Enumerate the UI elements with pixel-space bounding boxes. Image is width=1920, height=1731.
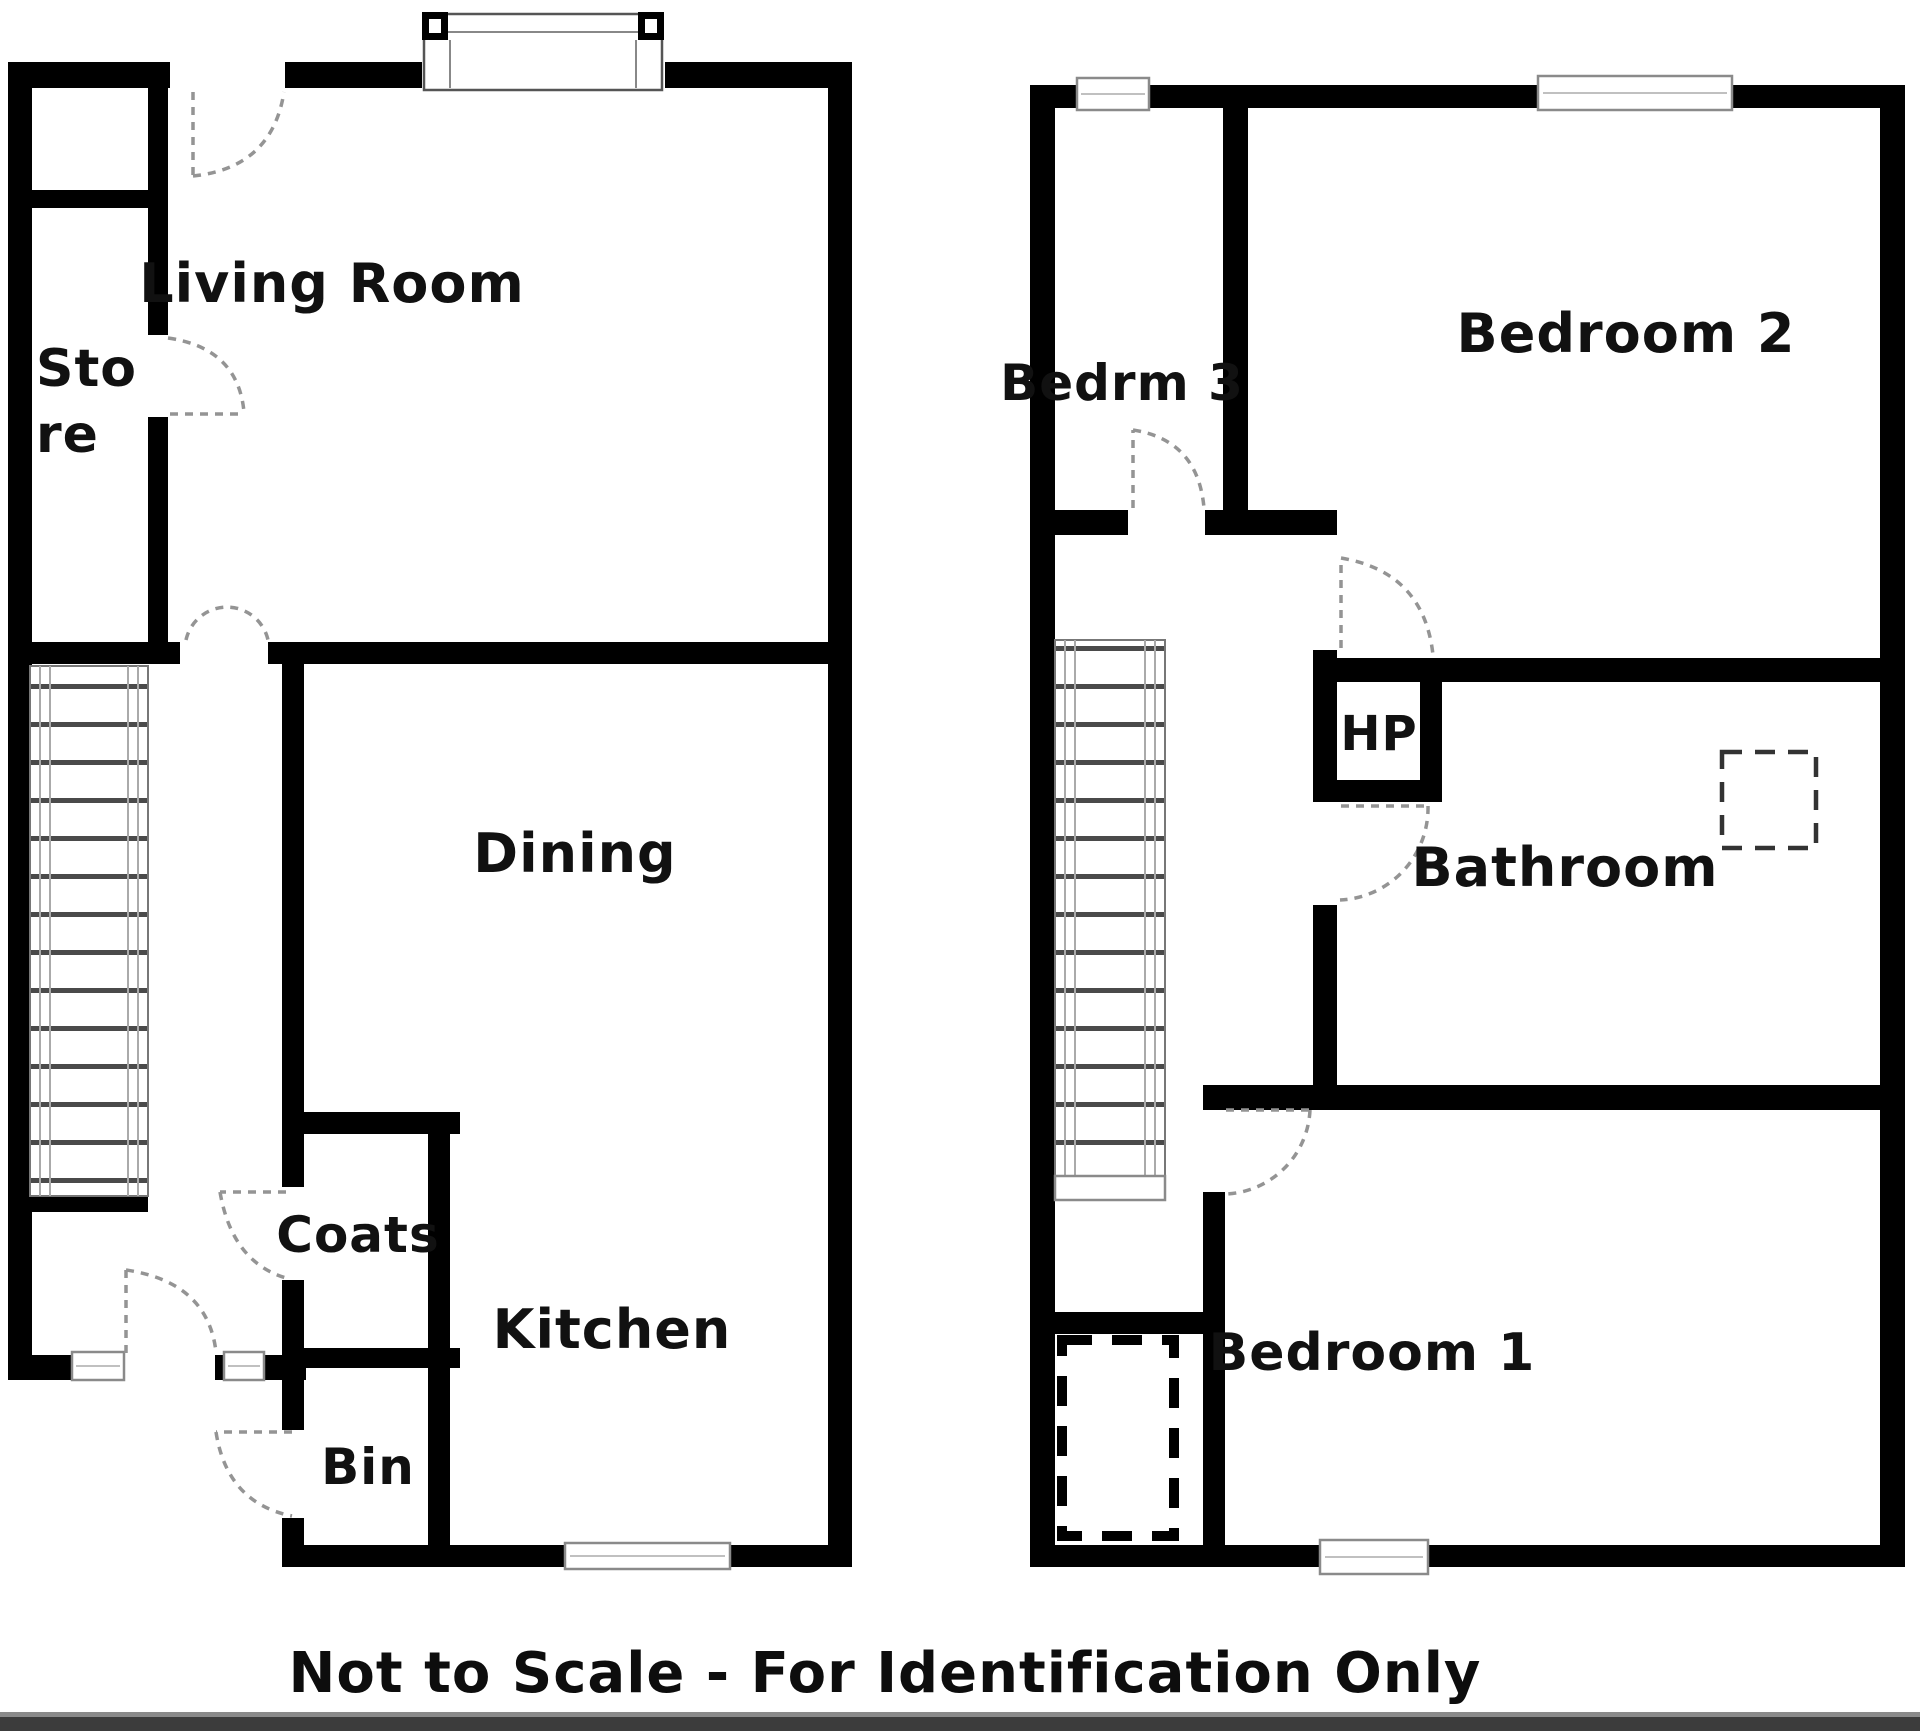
- floorplan-page: Living Room Sto re Dining Coats Kitchen …: [0, 0, 1920, 1731]
- bay-window-corner-right-notch: [645, 19, 657, 33]
- label-hp: HP: [1340, 706, 1417, 762]
- staircase-first: [1055, 640, 1165, 1200]
- first-floor-plan: Bedrm 3 Bedroom 2 HP Bathroom Bedroom 1: [1000, 76, 1905, 1574]
- bottom-bar-highlight: [0, 1712, 1920, 1717]
- door-swing-bin: [216, 1432, 292, 1516]
- stair-landing-edge: [1055, 1176, 1165, 1200]
- label-bedroom-3: Bedrm 3: [1000, 354, 1244, 412]
- door-swing-bedroom-3: [1133, 430, 1204, 508]
- bay-window-icon: [422, 12, 664, 90]
- footer-disclaimer: Not to Scale - For Identification Only: [289, 1641, 1482, 1706]
- door-swing-front-top: [193, 92, 284, 176]
- label-coats: Coats: [276, 1206, 439, 1264]
- window-symbol-bedroom-3: [1077, 78, 1149, 110]
- window-symbol-bedroom-2: [1538, 76, 1732, 110]
- door-swing-bedroom-2: [1341, 558, 1433, 655]
- door-swing-front-bottom: [126, 1270, 216, 1353]
- door-swing-bedroom-1: [1226, 1110, 1310, 1194]
- label-bathroom: Bathroom: [1412, 836, 1719, 899]
- label-store-line-2: re: [36, 405, 99, 465]
- label-living-room: Living Room: [139, 252, 525, 315]
- window-symbol-hall: [72, 1352, 124, 1380]
- label-dining: Dining: [473, 822, 676, 885]
- window-symbol-sidelight: [224, 1352, 264, 1380]
- window-symbol-bedroom-1: [1320, 1540, 1428, 1574]
- storage-dashed-fitting: [1062, 1340, 1174, 1536]
- label-kitchen: Kitchen: [493, 1298, 732, 1361]
- ground-floor-plan: Living Room Sto re Dining Coats Kitchen …: [8, 12, 852, 1569]
- label-bedroom-2: Bedroom 2: [1457, 302, 1796, 365]
- label-bedroom-1: Bedroom 1: [1209, 1323, 1536, 1383]
- door-swing-living-room: [186, 607, 268, 640]
- floorplan-canvas: Living Room Sto re Dining Coats Kitchen …: [0, 0, 1920, 1731]
- label-bin: Bin: [321, 1438, 415, 1496]
- bay-window-corner-left-notch: [429, 19, 441, 33]
- stair-steps: [30, 666, 148, 1196]
- bottom-bar: [0, 1717, 1920, 1731]
- bay-window-frame: [424, 14, 662, 90]
- bathroom-dashed-fitting: [1722, 752, 1816, 848]
- label-store-line-1: Sto: [36, 339, 137, 399]
- staircase-ground: [30, 666, 148, 1196]
- stair-steps: [1055, 640, 1165, 1178]
- door-swing-store: [168, 338, 244, 414]
- window-symbol-kitchen: [565, 1543, 730, 1569]
